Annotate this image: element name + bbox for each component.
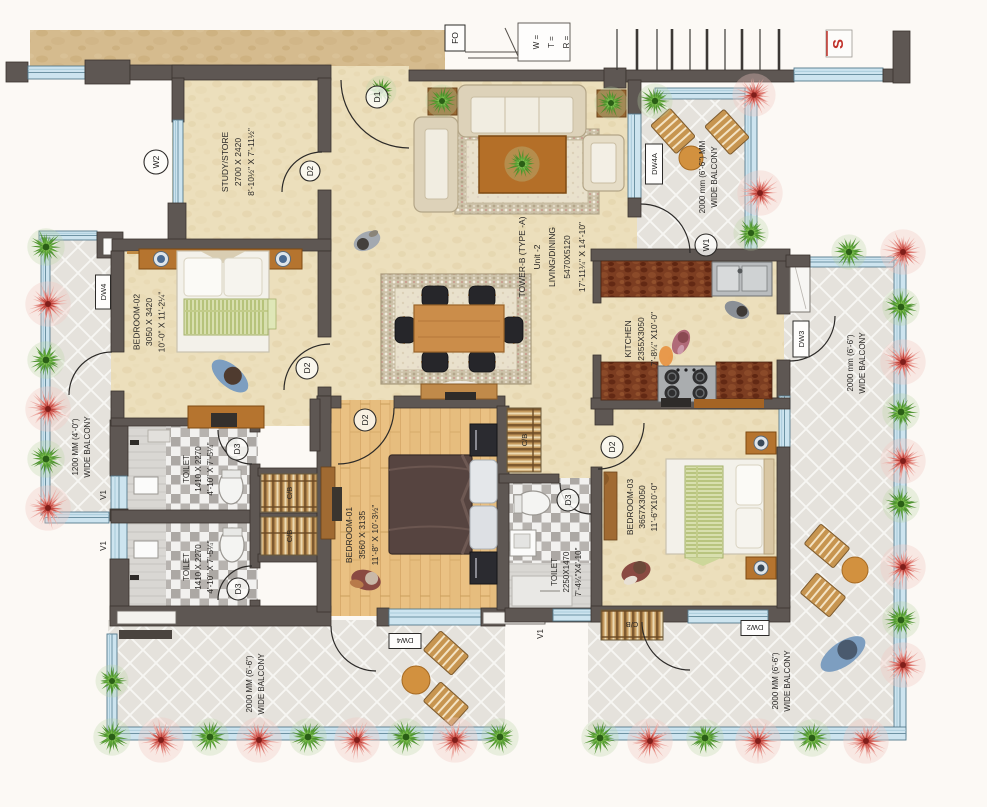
svg-text:2000 MM (6’-6"): 2000 MM (6’-6") [245,655,254,712]
svg-text:DW4: DW4 [99,284,108,301]
svg-text:WIDE BALCONY: WIDE BALCONY [783,650,792,712]
svg-text:7’-4¼"X4’-10": 7’-4¼"X4’-10" [574,547,583,596]
svg-text:V1: V1 [99,490,108,500]
svg-text:3050 X 3420: 3050 X 3420 [144,298,154,346]
svg-text:5470X5120: 5470X5120 [562,235,572,279]
svg-text:WIDE BALCONY: WIDE BALCONY [257,653,266,715]
svg-text:BEDROOM-02: BEDROOM-02 [132,294,142,350]
svg-text:TOILET: TOILET [550,558,559,586]
svg-text:11’-8" X 10’-3½": 11’-8" X 10’-3½" [370,505,380,566]
svg-text:LIVING/DINING: LIVING/DINING [547,227,557,287]
svg-text:TOWER-B (TYPE -A): TOWER-B (TYPE -A) [517,216,527,297]
svg-text:BEDROOM-03: BEDROOM-03 [625,479,635,535]
svg-text:4’-10" X 7’-5¼": 4’-10" X 7’-5¼" [206,442,215,495]
svg-text:2700 X 2420: 2700 X 2420 [233,138,243,186]
svg-text:WIDE BALCONY: WIDE BALCONY [83,416,92,478]
svg-text:1410 X 2270: 1410 X 2270 [194,446,203,492]
svg-text:W1: W1 [701,238,711,251]
svg-text:D2: D2 [360,414,370,425]
svg-text:TOILET: TOILET [182,455,191,483]
svg-text:BEDROOM-01: BEDROOM-01 [344,507,354,563]
svg-text:DW2: DW2 [747,623,764,632]
svg-text:2250X1470: 2250X1470 [562,551,571,592]
svg-text:D2: D2 [607,441,617,452]
svg-text:1200 MM (4’-0"): 1200 MM (4’-0") [71,418,80,475]
svg-text:WIDE BALCONY: WIDE BALCONY [710,146,719,208]
svg-text:3560 X 3135: 3560 X 3135 [357,511,367,559]
svg-text:D3: D3 [233,583,243,594]
svg-text:C/B: C/B [285,487,294,500]
svg-text:8’-10½" X 7’-11½": 8’-10½" X 7’-11½" [246,128,256,196]
svg-text:2000 mm (6’-6") MM: 2000 mm (6’-6") MM [698,140,707,213]
svg-text:2000 mm (6’-6"): 2000 mm (6’-6") [846,334,855,391]
svg-text:V1: V1 [536,629,545,639]
svg-text:DW4: DW4 [397,636,414,645]
svg-text:D3: D3 [563,494,573,505]
svg-text:C/B: C/B [285,530,294,543]
svg-text:S: S [830,39,847,49]
svg-text:TOILET: TOILET [182,553,191,581]
svg-text:T =: T = [547,36,556,48]
svg-text:2000 MM (6’-6"): 2000 MM (6’-6") [771,652,780,709]
svg-text:2355X3050: 2355X3050 [636,317,646,361]
svg-text:C/B: C/B [520,434,529,447]
svg-text:D1: D1 [372,91,382,102]
svg-text:C/B: C/B [626,620,639,629]
svg-text:D2: D2 [306,165,315,176]
svg-text:DW4A: DW4A [650,153,659,175]
svg-text:R =: R = [562,35,571,48]
svg-text:D2: D2 [302,362,312,373]
svg-text:1410 X 2270: 1410 X 2270 [194,544,203,590]
svg-text:DW3: DW3 [797,331,806,348]
svg-text:7’-8¼" X10’-0": 7’-8¼" X10’-0" [649,312,659,366]
svg-text:FO: FO [450,32,460,44]
svg-text:10’-0" X 11’-2¼": 10’-0" X 11’-2¼" [157,292,167,353]
svg-text:W2: W2 [151,155,161,168]
svg-text:11’-6"X10’-0": 11’-6"X10’-0" [649,483,659,532]
svg-text:W =: W = [532,34,541,49]
svg-text:17’-11¼" X 14’-10": 17’-11¼" X 14’-10" [577,222,587,292]
svg-text:Unit -2: Unit -2 [532,244,542,269]
svg-text:4’-10" X 7’-5¼": 4’-10" X 7’-5¼" [206,540,215,593]
svg-text:STUDY/STORE: STUDY/STORE [220,132,230,193]
svg-text:WIDE BALCONY: WIDE BALCONY [858,332,867,394]
svg-text:3657X3050: 3657X3050 [637,485,647,529]
svg-text:V1: V1 [99,541,108,551]
svg-text:D3: D3 [232,443,242,454]
svg-text:KITCHEN: KITCHEN [623,320,633,357]
